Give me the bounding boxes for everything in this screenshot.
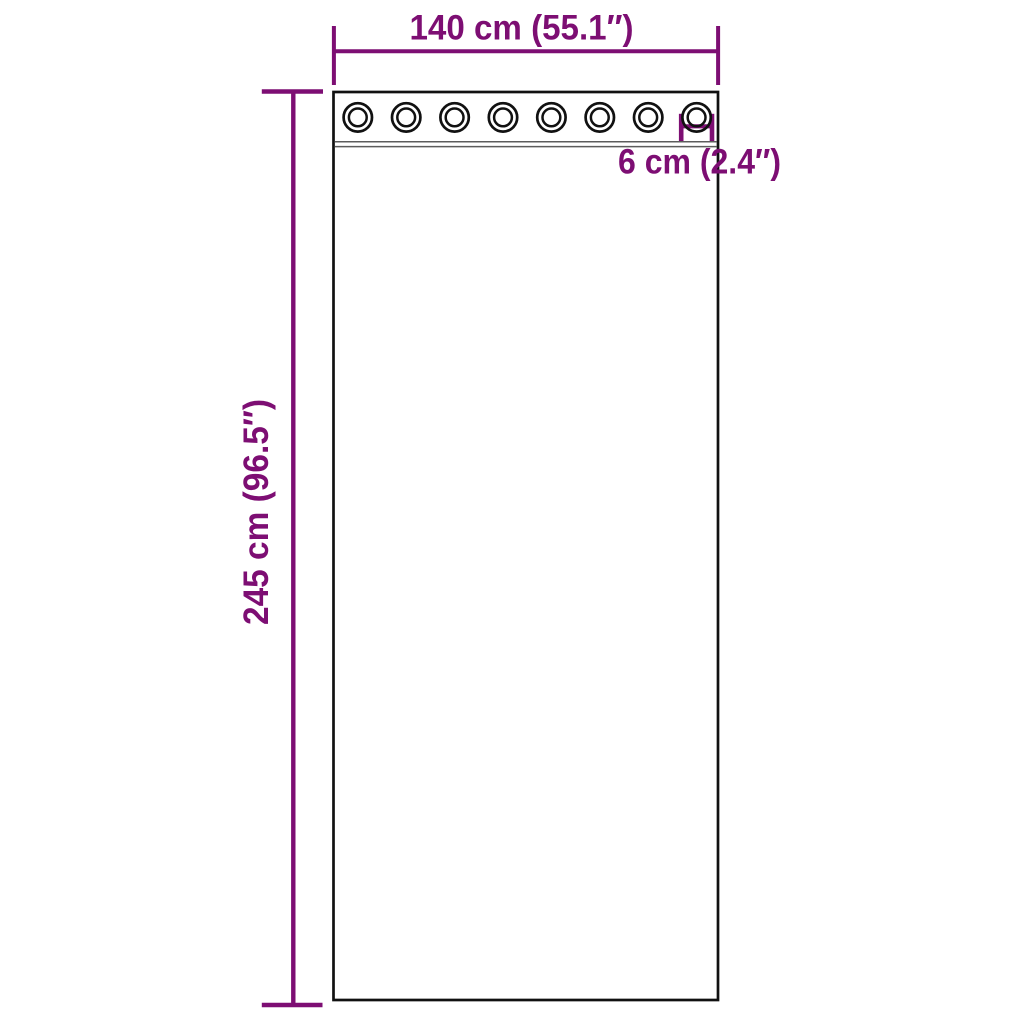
svg-text:245 cm (96.5″): 245 cm (96.5″) [237, 399, 276, 625]
svg-text:6 cm (2.4″): 6 cm (2.4″) [618, 143, 781, 182]
svg-text:140 cm (55.1″): 140 cm (55.1″) [410, 9, 634, 48]
